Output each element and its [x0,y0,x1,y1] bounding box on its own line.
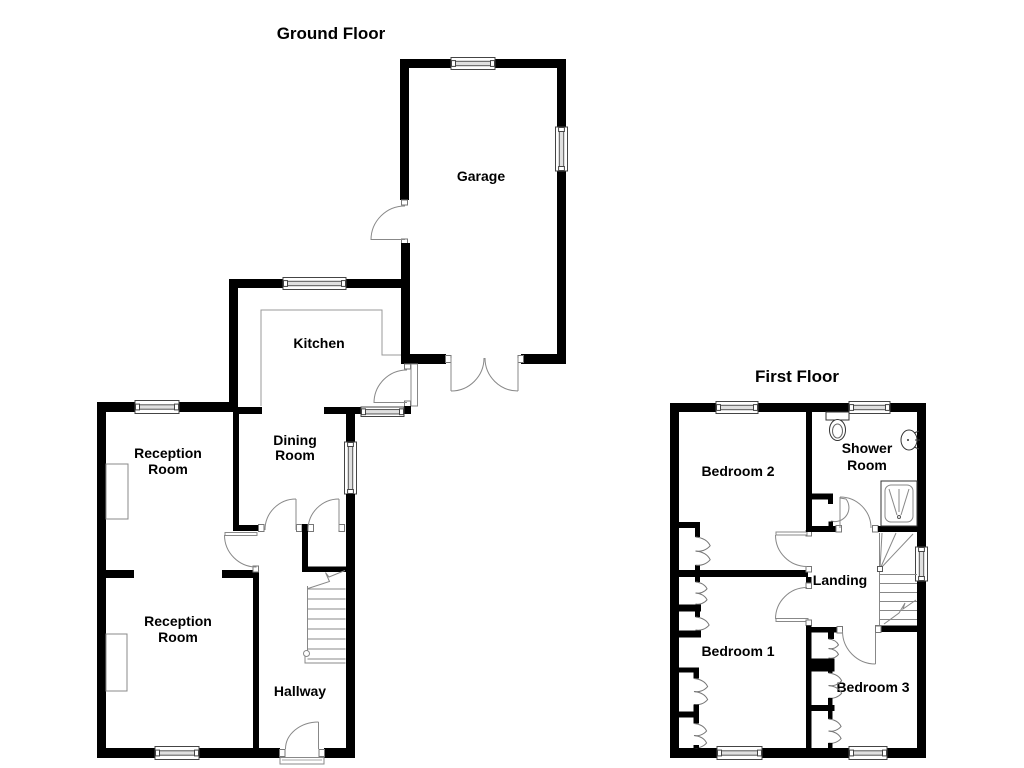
svg-text:Garage: Garage [457,168,505,184]
svg-text:First Floor: First Floor [755,367,839,386]
svg-text:Hallway: Hallway [274,683,326,699]
svg-text:Room: Room [158,629,198,645]
svg-text:Bedroom 1: Bedroom 1 [701,643,774,659]
svg-text:Shower: Shower [842,440,893,456]
svg-text:Landing: Landing [813,572,867,588]
svg-text:Room: Room [275,447,315,463]
svg-text:Dining: Dining [273,432,317,448]
svg-text:Kitchen: Kitchen [293,335,344,351]
svg-text:Reception: Reception [134,445,202,461]
svg-text:Ground Floor: Ground Floor [277,24,386,43]
svg-text:Bedroom 2: Bedroom 2 [701,463,774,479]
svg-text:Room: Room [148,461,188,477]
svg-text:Reception: Reception [144,613,212,629]
svg-text:Room: Room [847,457,887,473]
svg-text:Bedroom 3: Bedroom 3 [836,679,909,695]
